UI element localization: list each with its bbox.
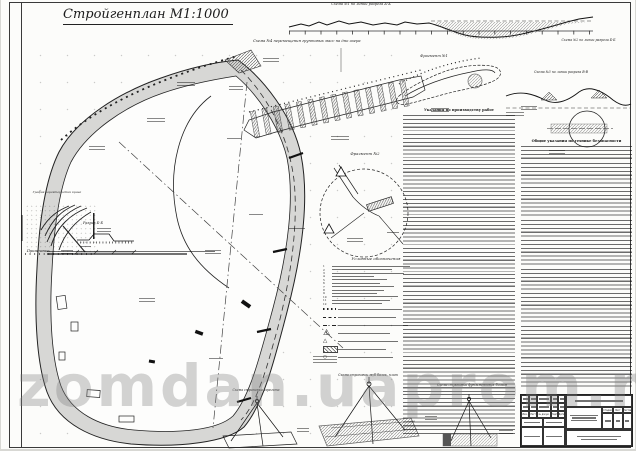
razrez-dimension-text xyxy=(81,246,91,249)
legend-item-text xyxy=(332,269,392,270)
plan-annotation xyxy=(205,250,221,256)
plan-annotation xyxy=(89,146,105,152)
detail-annotation xyxy=(549,150,565,156)
plan-annotation xyxy=(289,228,305,231)
legend-item-text xyxy=(332,286,394,287)
detail-annotation xyxy=(431,108,449,114)
legend-item-text xyxy=(338,309,402,310)
fragment2-detail xyxy=(320,165,408,257)
legend-item-text xyxy=(332,283,380,284)
triangle-marker-icon: △ xyxy=(323,338,338,344)
sling-annotation xyxy=(499,430,513,436)
plan-annotation xyxy=(97,228,111,234)
sling-annotation xyxy=(297,428,309,434)
legend-item-text xyxy=(338,325,408,326)
legend-item-text xyxy=(332,293,377,294)
safety-title: Общие указания по технике безопасности xyxy=(521,139,632,143)
legend-item-text xyxy=(338,349,386,350)
drawing-sheet: Стройгенплан М1:1000 xyxy=(1,0,635,449)
detail-annotation xyxy=(263,58,279,64)
legend-item-text xyxy=(332,296,398,297)
legend-item-text xyxy=(332,273,404,274)
fragment2-label: Фрагмент №2 xyxy=(333,152,397,156)
plan-annotation xyxy=(249,214,263,217)
plan-annotation xyxy=(147,118,165,124)
warning-triangle-icon: ⚠ xyxy=(323,329,338,337)
detail-annotation xyxy=(387,232,399,235)
legend-item-text xyxy=(332,266,410,267)
plan-annotation xyxy=(227,138,241,141)
legend-item-text xyxy=(332,303,382,304)
watermark: zomdan.uaprom.ne xyxy=(17,352,636,420)
profile-section-1 xyxy=(289,17,593,39)
fragment1-label: Фрагмент №1 xyxy=(404,54,464,58)
scheme3-label: Схема №3 по линии разреза В-В xyxy=(506,71,616,75)
razrez-bb-label: Разрез Б-Б xyxy=(83,221,123,225)
plan-annotation xyxy=(61,250,73,256)
legend-item-text xyxy=(338,333,390,334)
scheme4-label: Схема №4 перемещения грунтовых масс на д… xyxy=(253,39,413,43)
plan-annotation xyxy=(177,82,195,88)
legend-item-text xyxy=(332,279,387,280)
legend-item-text xyxy=(332,290,384,291)
revision-row xyxy=(521,427,565,446)
dashed-line-symbol xyxy=(323,317,338,318)
detail-annotation xyxy=(506,112,524,118)
legend-item-text xyxy=(332,276,374,277)
dashdot-line-symbol xyxy=(323,325,338,326)
legend-item-text xyxy=(338,341,398,342)
plan-annotation xyxy=(139,298,155,304)
dotted-line-symbol xyxy=(323,308,338,310)
legend-item-text xyxy=(332,300,390,301)
organization-cell xyxy=(566,430,632,446)
crane-graph-title: График характеристик крана xyxy=(29,191,85,194)
legend-item-text xyxy=(338,317,396,318)
scheme2-label: Схема №2 по линии разреза Б-Б xyxy=(541,39,636,43)
instructions-title: Указания по производству работ xyxy=(403,108,515,112)
legend-item-number: 12 xyxy=(323,302,332,306)
detail-annotation xyxy=(347,238,363,244)
scheme1-label: Схема №1 по линии разреза А-А xyxy=(301,2,421,6)
detail-annotation xyxy=(331,136,349,142)
safety-column: Общие указания по технике безопасности xyxy=(521,139,632,388)
detail-annotation xyxy=(229,86,243,92)
